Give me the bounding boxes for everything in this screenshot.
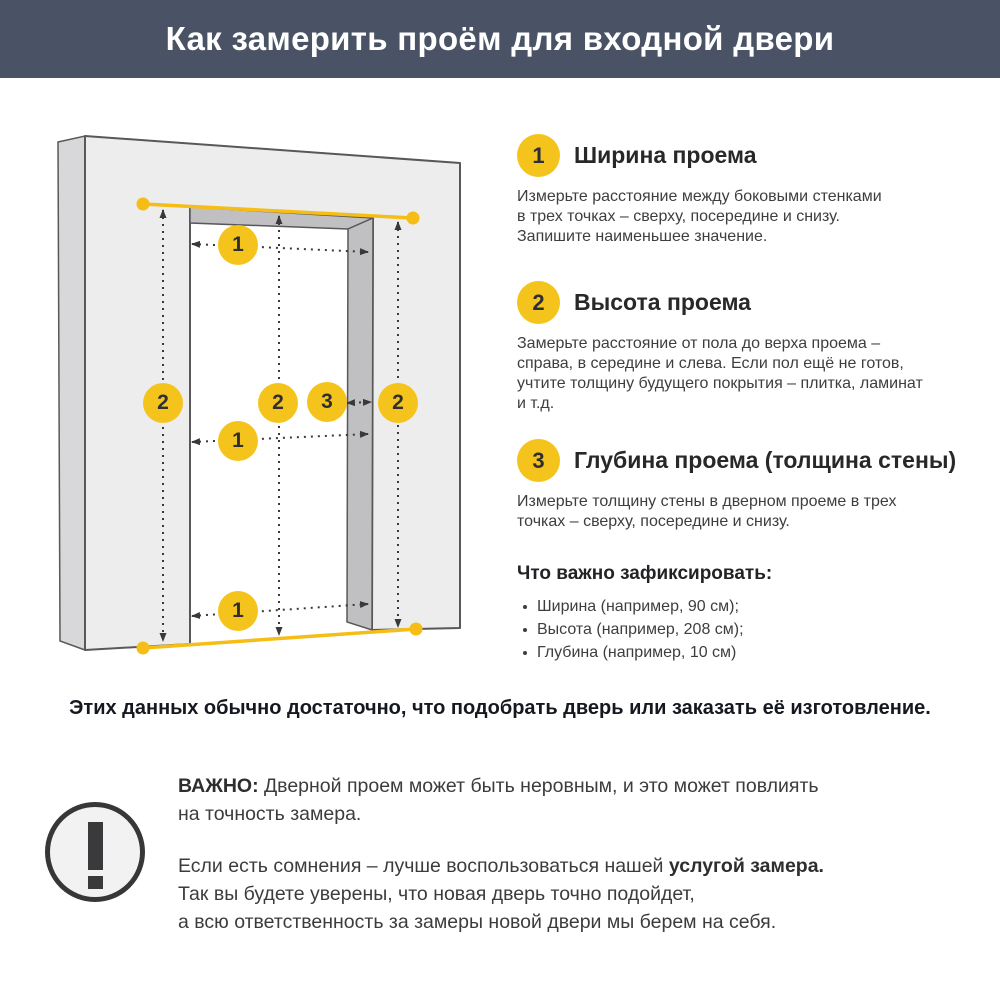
checklist-items: Ширина (например, 90 см); Высота (наприм…: [517, 598, 987, 661]
checklist: Что важно зафиксировать: Ширина (наприме…: [517, 563, 987, 667]
checklist-item-depth: Глубина (например, 10 см): [523, 644, 987, 661]
step-width-title: Ширина проема: [574, 142, 757, 169]
step-depth-header: 3 Глубина проема (толщина стены): [517, 439, 987, 482]
badge-width-bottom: 1: [218, 591, 258, 631]
step-width-header: 1 Ширина проема: [517, 134, 987, 177]
important-paragraph-2: Если есть сомнения – лучше воспользовать…: [178, 852, 958, 936]
badge-width-middle: 1: [218, 421, 258, 461]
badge-width-top: 1: [218, 225, 258, 265]
step-width-number-badge: 1: [517, 134, 560, 177]
header-bar: Как замерить проём для входной двери: [0, 0, 1000, 78]
important-label: ВАЖНО:: [178, 775, 259, 797]
exclamation-bar: [88, 822, 103, 870]
step-depth-title: Глубина проема (толщина стены): [574, 447, 956, 474]
step-height-description: Замерьте расстояние от пола до верха про…: [517, 334, 987, 414]
step-depth: 3 Глубина проема (толщина стены) Измерьт…: [517, 439, 987, 532]
bullet-icon: [523, 628, 527, 632]
badge-height-right: 2: [378, 383, 418, 423]
important-paragraph-2-pre: Если есть сомнения – лучше воспользовать…: [178, 855, 669, 877]
important-note: ВАЖНО: Дверной проем может быть неровным…: [178, 772, 958, 936]
badge-height-left: 2: [143, 383, 183, 423]
badge-height-middle: 2: [258, 383, 298, 423]
bullet-icon: [523, 605, 527, 609]
checklist-title: Что важно зафиксировать:: [517, 563, 987, 585]
badge-depth: 3: [307, 382, 347, 422]
step-height: 2 Высота проема Замерьте расстояние от п…: [517, 281, 987, 414]
measuring-service-highlight: услугой замера.: [669, 855, 824, 877]
summary-line: Этих данных обычно достаточно, что подоб…: [0, 697, 1000, 720]
exclamation-dot: [88, 876, 103, 889]
checklist-item-height: Высота (например, 208 см);: [523, 621, 987, 638]
exclamation-icon: [45, 802, 145, 902]
bullet-icon: [523, 651, 527, 655]
step-height-header: 2 Высота проема: [517, 281, 987, 324]
checklist-item-height-text: Высота (например, 208 см);: [537, 621, 744, 638]
opening-jamb-face: [347, 218, 373, 630]
important-paragraph-2-rest: Так вы будете уверены, что новая дверь т…: [178, 883, 776, 933]
doorway-diagram: 1 1 1 2 2 2 3: [0, 100, 520, 700]
infographic-page: Как замерить проём для входной двери: [0, 0, 1000, 1000]
wall-side-face: [58, 136, 85, 650]
checklist-item-depth-text: Глубина (например, 10 см): [537, 644, 736, 661]
checklist-item-width: Ширина (например, 90 см);: [523, 598, 987, 615]
checklist-item-width-text: Ширина (например, 90 см);: [537, 598, 739, 615]
step-width-description: Измерьте расстояние между боковыми стенк…: [517, 187, 987, 247]
step-width: 1 Ширина проема Измерьте расстояние межд…: [517, 134, 987, 247]
step-depth-number-badge: 3: [517, 439, 560, 482]
step-depth-description: Измерьте толщину стены в дверном проеме …: [517, 492, 987, 532]
page-title: Как замерить проём для входной двери: [166, 20, 835, 58]
important-paragraph-1: ВАЖНО: Дверной проем может быть неровным…: [178, 772, 958, 828]
step-height-number-badge: 2: [517, 281, 560, 324]
step-height-title: Высота проема: [574, 289, 751, 316]
important-paragraph-1-text: Дверной проем может быть неровным, и это…: [178, 775, 819, 825]
